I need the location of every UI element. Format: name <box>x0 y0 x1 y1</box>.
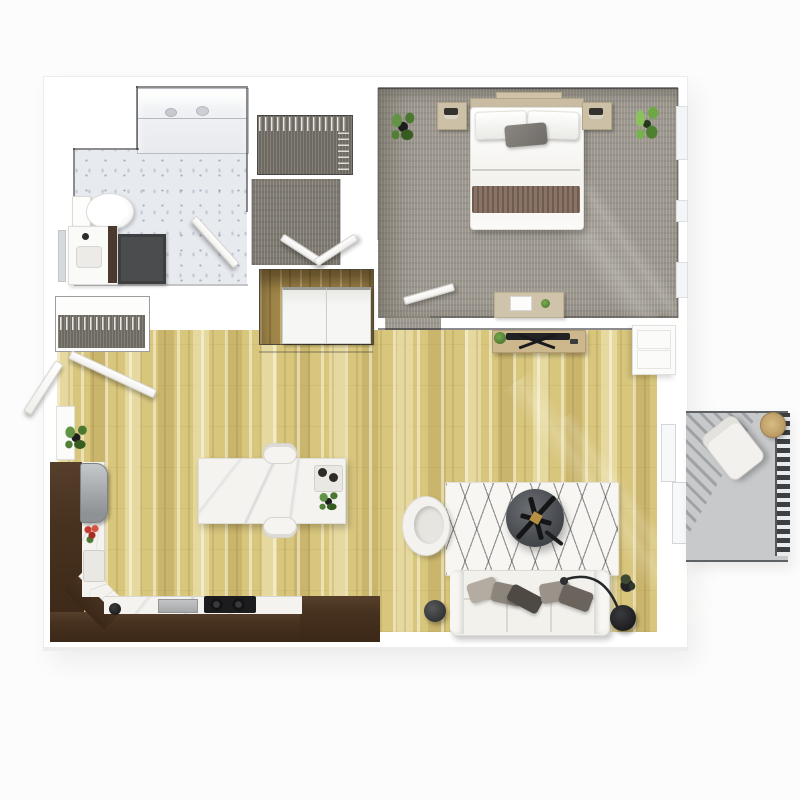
utensil-crock <box>109 603 121 615</box>
vanity-drawers <box>108 226 117 283</box>
coffee-cup <box>318 468 327 477</box>
wall-line <box>259 351 373 353</box>
cabinet-panel <box>637 350 671 369</box>
hanging-clothes <box>60 317 143 330</box>
sofa-seam <box>506 600 508 632</box>
bedroom-window <box>676 262 688 298</box>
shower-head <box>165 108 177 117</box>
vanity-sink <box>76 246 102 268</box>
entry-plant-icon <box>60 420 92 454</box>
arc-lamp-base <box>610 605 636 631</box>
kitchen-sink <box>83 550 105 582</box>
accent-pillow <box>504 122 548 148</box>
potted-plant-icon <box>386 106 420 146</box>
washer <box>282 287 327 344</box>
cutting-board <box>158 599 198 613</box>
remote <box>570 339 578 344</box>
arc-lamp-pole <box>564 577 620 614</box>
wall-line <box>377 88 379 240</box>
sliding-door-panel <box>661 424 676 482</box>
countertop-bottom <box>104 596 302 614</box>
side-table <box>424 600 446 622</box>
desk-plant <box>541 299 550 308</box>
sofa-arm-left <box>450 570 464 634</box>
faucet <box>82 233 89 240</box>
wall-line <box>73 148 139 150</box>
throw-blanket <box>472 186 580 213</box>
floor-plan-canvas <box>0 0 800 800</box>
nightstand-tray <box>444 108 458 119</box>
shower-glass-ledge <box>137 118 247 119</box>
bar-stool-top <box>263 443 297 464</box>
wall-line <box>378 87 678 89</box>
accent-chair-seat <box>414 506 444 544</box>
kitchen-counter-return <box>300 596 380 642</box>
coffee-cup <box>329 473 338 482</box>
hanging-clothes <box>338 132 349 170</box>
hanging-clothes <box>259 117 349 131</box>
sliding-door-panel <box>672 482 687 544</box>
island-plant-icon <box>315 488 342 514</box>
burner <box>232 598 245 611</box>
wall-line <box>251 179 253 265</box>
sofa-seam <box>550 600 552 632</box>
wall-line <box>136 86 138 150</box>
bedroom-window <box>676 106 688 160</box>
duvet-fold <box>472 169 580 171</box>
balcony-table <box>760 412 786 438</box>
arc-lamp-head <box>560 577 568 585</box>
wall-line <box>136 86 248 88</box>
dryer <box>326 287 371 344</box>
burner <box>210 598 223 611</box>
bar-stool-bottom <box>263 517 297 538</box>
ceiling-light <box>196 106 209 116</box>
wall-line <box>246 88 248 212</box>
wall-mirror <box>58 230 66 282</box>
glass-shower <box>137 88 249 154</box>
bedroom-window <box>676 200 688 222</box>
refrigerator <box>80 463 108 523</box>
toilet-bowl <box>86 193 134 230</box>
bath-mat <box>118 234 166 284</box>
fern-plant-icon <box>630 100 664 146</box>
console-plant <box>494 332 506 344</box>
laptop <box>510 296 532 311</box>
flowers <box>82 522 102 544</box>
cabinet-panel <box>637 330 671 349</box>
nightstand-tray <box>589 108 603 119</box>
